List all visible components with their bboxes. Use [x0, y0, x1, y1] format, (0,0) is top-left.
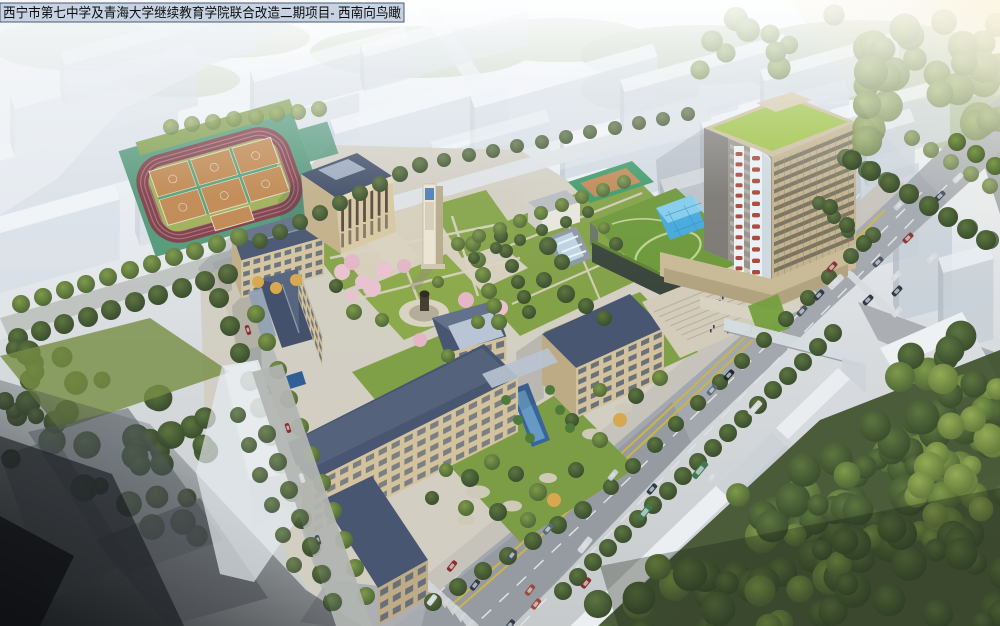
svg-text:西宁市第七中学及青海大学继续教育学院联合改造二期项目- 西南: 西宁市第七中学及青海大学继续教育学院联合改造二期项目- 西南向鸟瞰 — [3, 5, 401, 21]
